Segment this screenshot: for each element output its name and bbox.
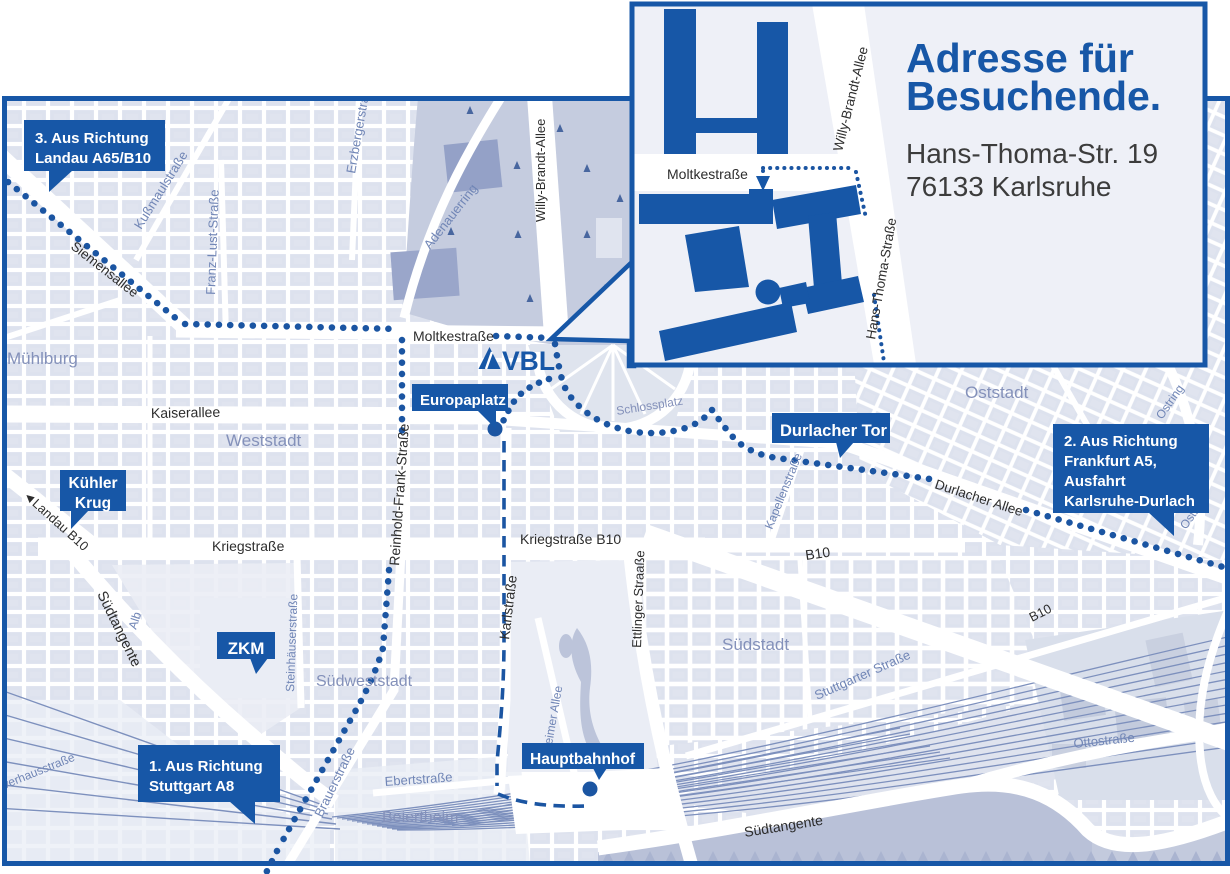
svg-text:Kaiserallee: Kaiserallee [151, 404, 221, 421]
svg-text:Willy-Brandt-Allee: Willy-Brandt-Allee [533, 119, 548, 222]
svg-text:Karlsruhe-Durlach: Karlsruhe-Durlach [1064, 493, 1195, 510]
svg-text:Stuttgart A8: Stuttgart A8 [149, 778, 234, 795]
svg-text:Kriegstraße B10: Kriegstraße B10 [520, 531, 621, 547]
svg-text:VBL: VBL [502, 346, 555, 376]
svg-text:Oststadt: Oststadt [965, 383, 1029, 402]
svg-text:Frankfurt A5,: Frankfurt A5, [1064, 453, 1157, 470]
svg-text:Hans-Thoma-Str. 19: Hans-Thoma-Str. 19 [906, 138, 1158, 169]
svg-text:Ausfahrt: Ausfahrt [1064, 473, 1126, 490]
svg-text:Durlacher Tor: Durlacher Tor [780, 422, 888, 440]
svg-text:Weststadt: Weststadt [226, 431, 302, 450]
svg-text:2. Aus Richtung: 2. Aus Richtung [1064, 433, 1178, 450]
svg-text:Südweststadt: Südweststadt [316, 673, 413, 690]
svg-text:Landau A65/B10: Landau A65/B10 [35, 150, 151, 167]
svg-text:Moltkestraße: Moltkestraße [667, 166, 748, 182]
svg-text:ZKM: ZKM [228, 639, 265, 658]
svg-text:1. Aus Richtung: 1. Aus Richtung [149, 758, 263, 775]
svg-text:Hauptbahnhof: Hauptbahnhof [530, 751, 636, 768]
svg-text:Kühler: Kühler [68, 475, 117, 492]
svg-text:Südstadt: Südstadt [722, 635, 789, 654]
svg-text:Besuchende.: Besuchende. [906, 73, 1161, 119]
svg-text:Moltkestraße: Moltkestraße [413, 328, 494, 344]
svg-text:Europaplatz: Europaplatz [420, 392, 506, 409]
svg-text:76133 Karlsruhe: 76133 Karlsruhe [906, 171, 1111, 202]
svg-text:Beiertheim: Beiertheim [382, 809, 458, 826]
svg-text:Krug: Krug [75, 495, 111, 512]
svg-text:Kriegstraße: Kriegstraße [212, 538, 285, 554]
svg-text:3. Aus Richtung: 3. Aus Richtung [35, 130, 149, 147]
svg-text:Mühlburg: Mühlburg [7, 349, 78, 368]
